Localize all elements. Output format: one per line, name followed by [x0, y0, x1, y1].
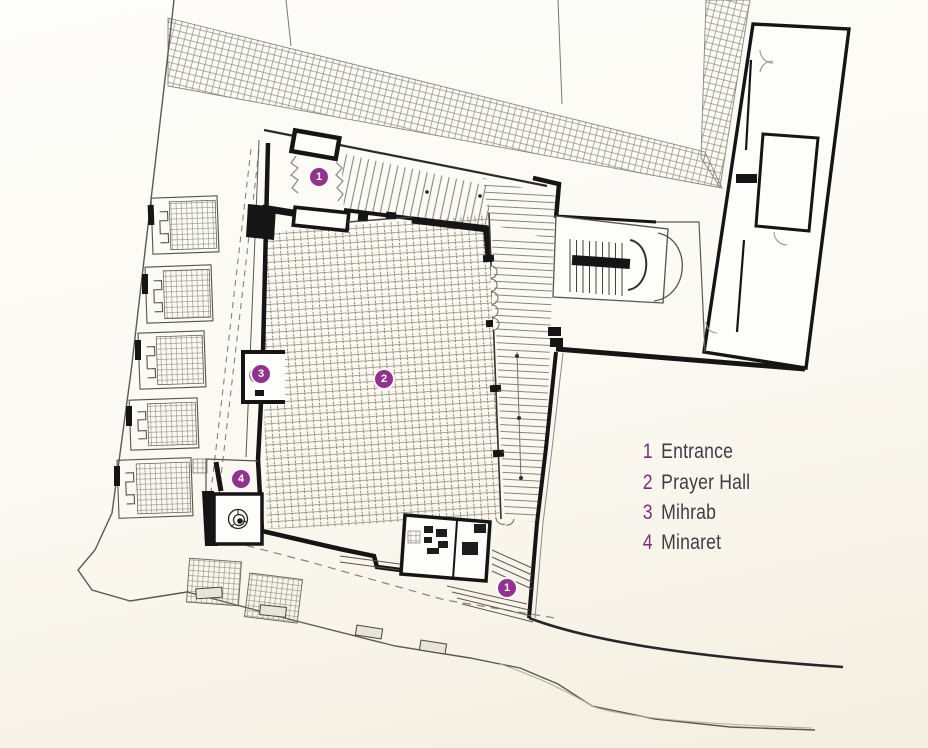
legend-label: Minaret: [661, 531, 721, 555]
marker-entrance-bottom-number: 1: [504, 583, 510, 594]
legend-item-mihrab: 3 Mihrab: [641, 498, 750, 528]
hill-room: [114, 458, 193, 519]
u-stair: [553, 216, 682, 303]
marker-entrance-top: 1: [310, 168, 328, 186]
hill-room: [126, 398, 199, 450]
marker-entrance-top-number: 1: [316, 172, 322, 183]
marker-mihrab-number: 3: [258, 369, 264, 380]
street-paving: [168, 0, 750, 188]
plan-legend: 1 Entrance 2 Prayer Hall 3 Mihrab 4 Mina…: [641, 437, 750, 559]
legend-item-entrance: 1 Entrance: [641, 437, 750, 467]
legend-number: 2: [641, 471, 654, 495]
floor-plan-drawing: [0, 0, 928, 748]
legend-label: Prayer Hall: [661, 471, 750, 495]
hill-room: [142, 265, 213, 323]
marker-entrance-bottom: 1: [498, 579, 516, 597]
hill-room: [148, 196, 219, 254]
north-entrance: [291, 130, 343, 201]
legend-item-prayer-hall: 2 Prayer Hall: [641, 467, 750, 497]
marker-prayer-hall: 2: [375, 370, 393, 388]
legend-label: Mihrab: [661, 501, 716, 525]
minaret: [193, 459, 262, 546]
floor-plan-page: 1 2 3 4 1 1 Entrance 2 Prayer Hall 3 Mih…: [0, 0, 928, 748]
legend-number: 1: [641, 440, 654, 464]
legend-label: Entrance: [661, 440, 733, 464]
legend-item-minaret: 4 Minaret: [641, 528, 750, 558]
legend-number: 4: [641, 531, 654, 555]
marker-minaret-number: 4: [238, 474, 244, 485]
legend-number: 3: [641, 501, 654, 525]
hill-room: [135, 331, 206, 389]
marker-prayer-hall-number: 2: [381, 374, 387, 385]
marker-minaret: 4: [232, 470, 250, 488]
marker-mihrab: 3: [252, 365, 270, 383]
